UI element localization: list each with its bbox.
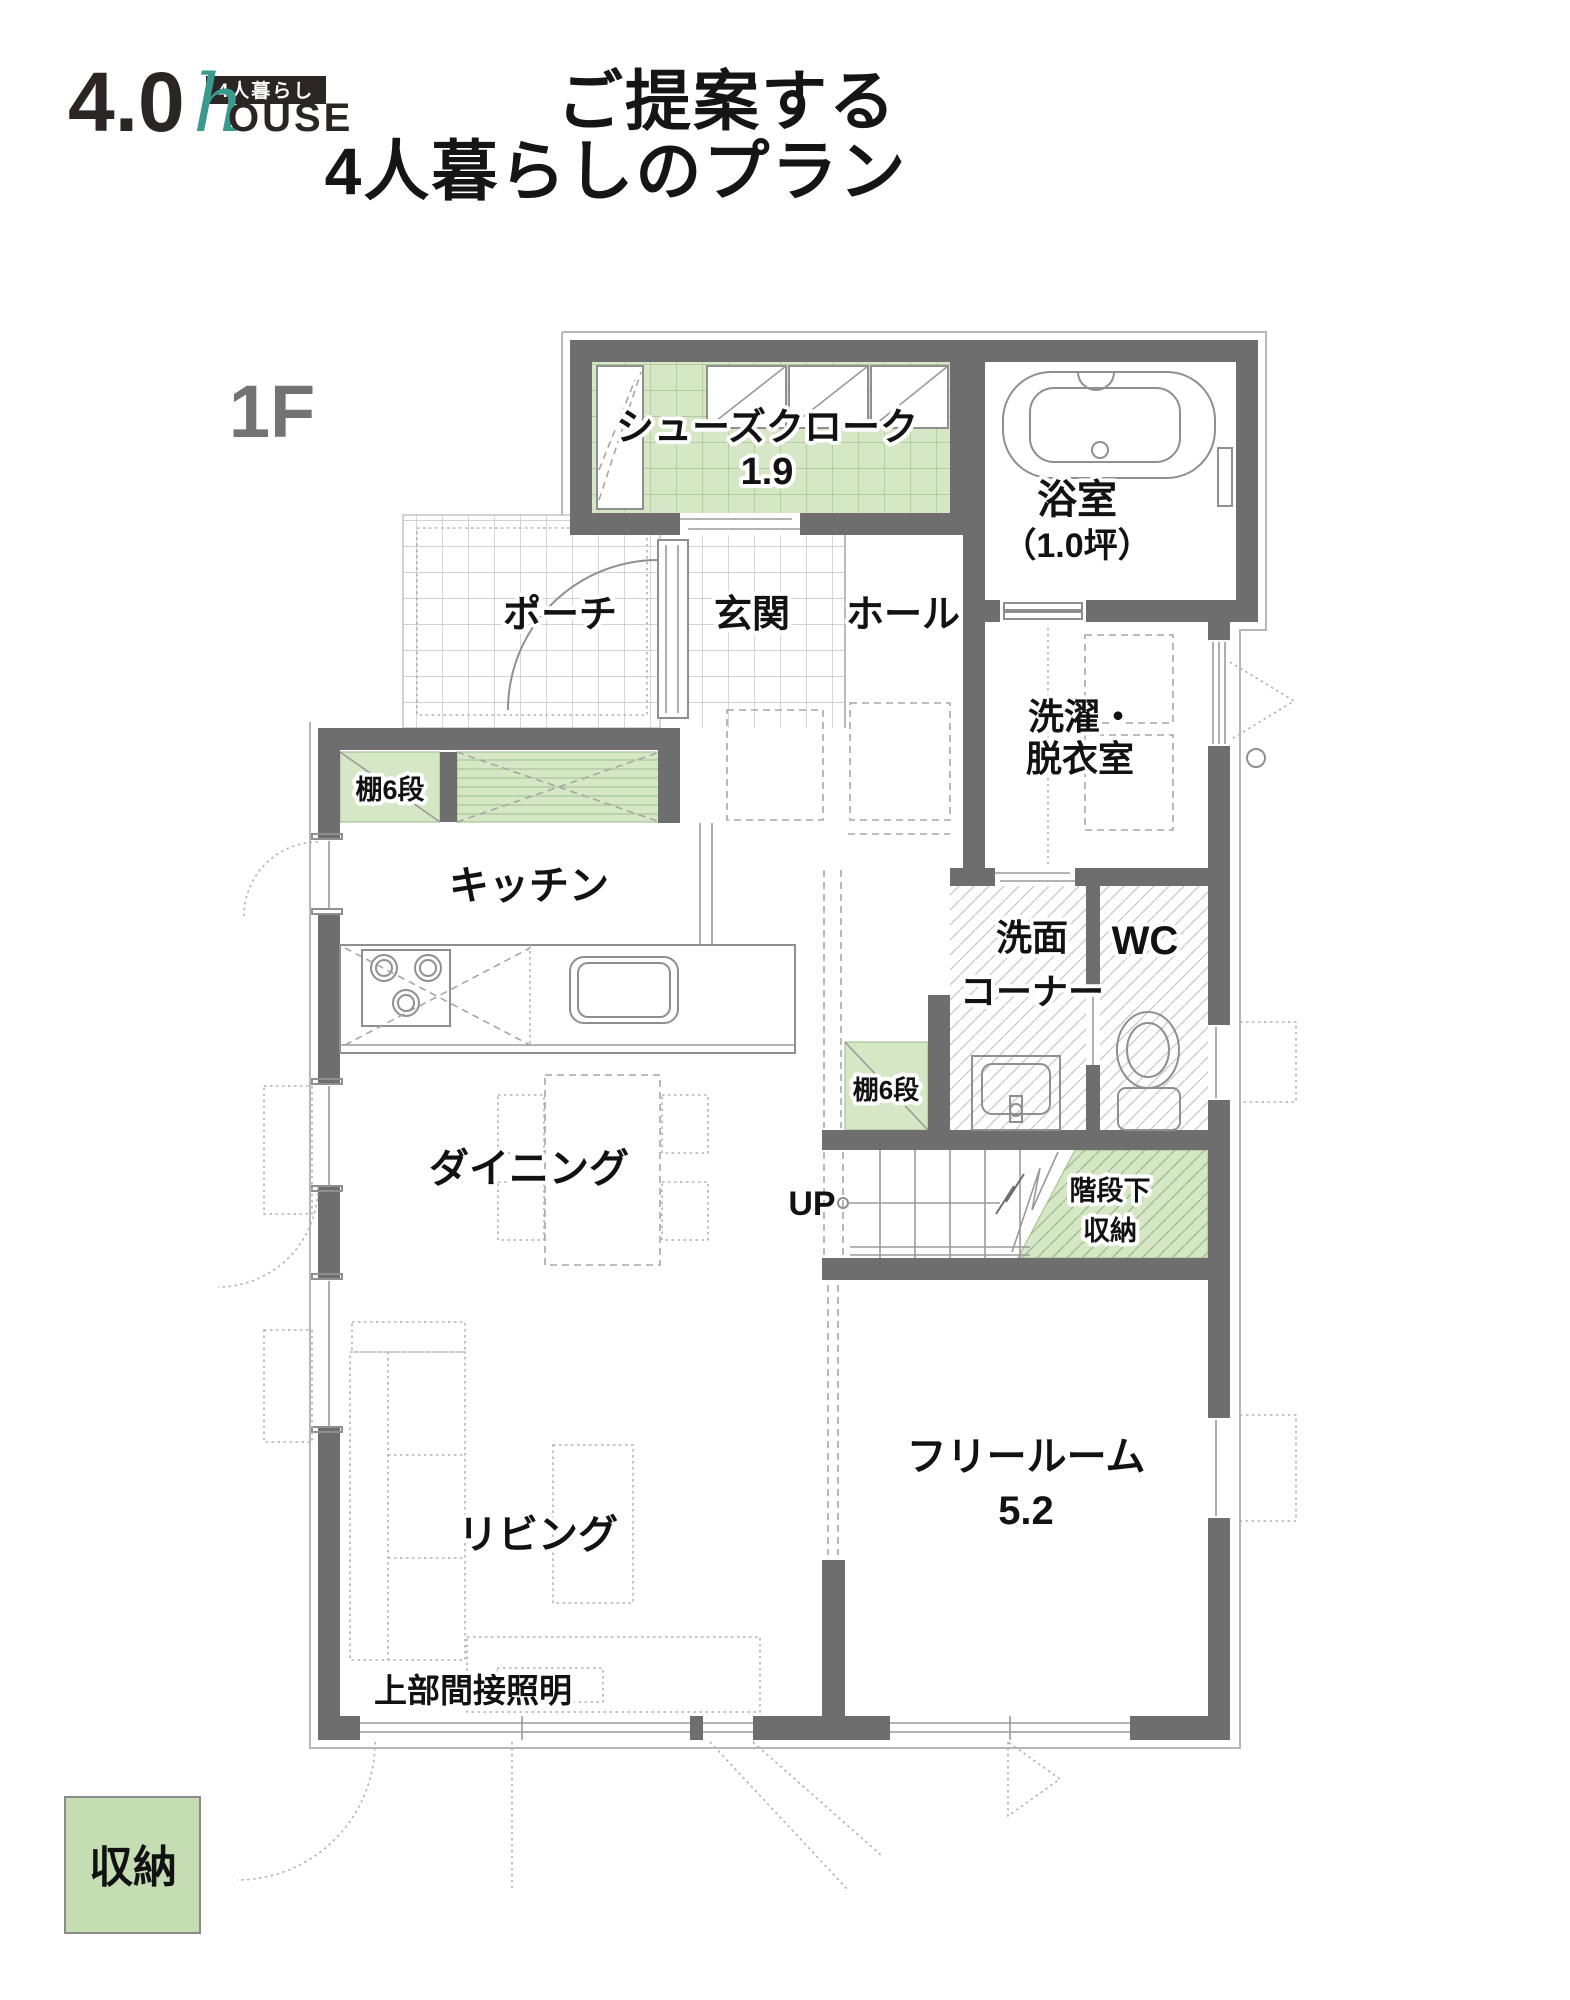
label-lighting: 上部間接照明 <box>374 1672 572 1709</box>
label-wash-corner-1: 洗面 <box>996 917 1068 958</box>
label-under-stair-2: 収納 <box>1083 1215 1137 1246</box>
label-kitchen: キッチン <box>449 864 609 908</box>
label-shelf-lower: 棚6段 <box>853 1075 919 1105</box>
living-small-window <box>703 1716 882 1890</box>
label-stairs-up: UP <box>788 1185 835 1223</box>
bath-door <box>1000 600 1086 622</box>
living-side-window <box>264 1274 342 1442</box>
label-under-stair-1: 階段下 <box>1070 1176 1151 1206</box>
label-free-room: フリールーム <box>907 1435 1146 1479</box>
page-title: ご提案する 4人暮らしのプラン <box>325 64 908 208</box>
label-hall: ホール <box>846 594 960 636</box>
label-shelf-upper: 棚6段 <box>355 775 424 805</box>
kitchen-pantry-counter <box>457 752 660 822</box>
title-line2: 4人暮らしのプラン <box>325 134 908 208</box>
floorplan-page: 4.0 4人暮らし h OUSE ご提案する 4人暮らしのプラン 1F <box>0 0 1570 2000</box>
label-porch: ポーチ <box>503 594 617 636</box>
shoe-closet-sliding-door <box>680 513 800 535</box>
legend-storage-label: 収納 <box>89 1843 177 1892</box>
label-shoe-closet: シューズクローク <box>616 406 918 449</box>
shelf-lower: 棚6段 <box>845 1042 928 1130</box>
laundry-sliding-door <box>995 868 1075 886</box>
label-wash-corner-2: コーナー <box>960 971 1104 1012</box>
kitchen-service-door <box>244 834 342 916</box>
shelf-upper: 棚6段 <box>340 752 440 822</box>
title-line1: ご提案する <box>557 64 897 138</box>
wash-corner-window <box>1208 1022 1296 1102</box>
label-dining: ダイニング <box>429 1147 629 1191</box>
label-laundry-2: 脱衣室 <box>1026 738 1134 779</box>
label-entrance: 玄関 <box>714 594 790 636</box>
free-room-window <box>890 1716 1130 1816</box>
floorplan-svg: 4.0 4人暮らし h OUSE ご提案する 4人暮らしのプラン 1F <box>0 0 1570 2000</box>
living-terrace-window <box>237 1716 690 1888</box>
free-room-sliding-door <box>822 1280 845 1560</box>
label-wc: WC <box>1112 919 1179 963</box>
label-free-room-size: 5.2 <box>998 1489 1054 1533</box>
legend-storage: 収納 <box>65 1797 200 1933</box>
logo-number: 4.0 <box>68 55 185 149</box>
brand-logo: 4.0 4人暮らし h OUSE <box>68 55 353 150</box>
label-laundry-1: 洗濯・ <box>1028 696 1136 737</box>
label-bath: 浴室 <box>1037 478 1117 522</box>
label-bath-size: （1.0坪） <box>1002 526 1151 565</box>
label-living: リビング <box>458 1513 618 1557</box>
free-room-side-window <box>1208 1415 1296 1521</box>
label-shoe-closet-size: 1.9 <box>741 451 794 493</box>
floor-label: 1F <box>229 370 315 453</box>
